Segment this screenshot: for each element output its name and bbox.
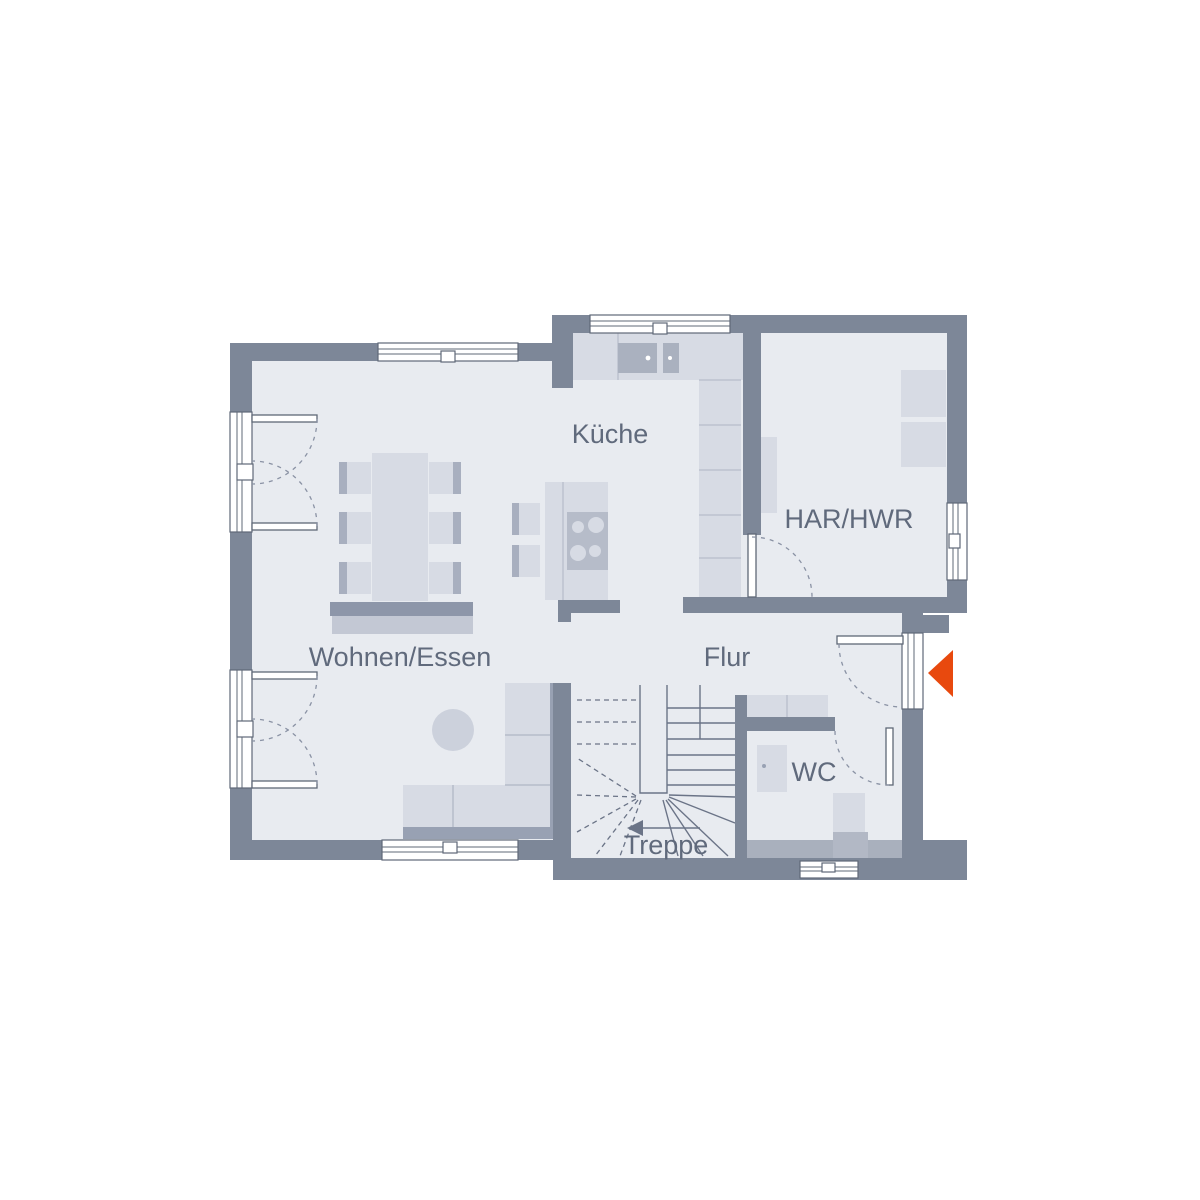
flur-sideboard bbox=[747, 695, 828, 717]
wc-sink bbox=[757, 745, 787, 792]
floor-plan-page: Küche HAR/HWR Wohnen/Essen Flur WC Trepp… bbox=[0, 0, 1200, 1200]
window-kitchen bbox=[590, 315, 730, 334]
room-label-har-hwr: HAR/HWR bbox=[785, 504, 914, 534]
dining-set bbox=[330, 453, 473, 634]
door-handle-icon bbox=[237, 464, 253, 480]
dining-table bbox=[372, 453, 428, 601]
sideboard-body bbox=[332, 616, 473, 634]
entrance-arrow-icon bbox=[928, 650, 953, 697]
window-bottom-living bbox=[382, 840, 518, 860]
room-label-wc: WC bbox=[792, 757, 837, 787]
window-handle-icon bbox=[443, 842, 457, 853]
wc-ledge bbox=[743, 840, 902, 858]
window-har bbox=[947, 503, 967, 580]
dryer bbox=[901, 422, 946, 467]
toilet-base bbox=[833, 832, 868, 858]
room-label-wohnen-essen: Wohnen/Essen bbox=[309, 642, 492, 672]
room-label-flur: Flur bbox=[704, 642, 751, 672]
window-handle-icon bbox=[822, 863, 835, 872]
washer bbox=[901, 370, 946, 417]
coffee-table bbox=[432, 709, 474, 751]
har-shelf bbox=[761, 437, 777, 513]
dining-chairs-left bbox=[339, 462, 371, 594]
floor-plan-canvas: Küche HAR/HWR Wohnen/Essen Flur WC Trepp… bbox=[0, 0, 1200, 1200]
window-handle-icon bbox=[653, 323, 667, 334]
sideboard-dark-top bbox=[330, 602, 473, 616]
window-handle-icon bbox=[949, 534, 960, 548]
dining-chairs-right bbox=[429, 462, 461, 594]
window-handle-icon bbox=[441, 351, 455, 362]
window-wc bbox=[800, 861, 858, 878]
toilet-bowl bbox=[833, 793, 865, 832]
room-label-treppe: Treppe bbox=[624, 830, 709, 860]
room-label-kueche: Küche bbox=[572, 419, 649, 449]
door-handle-icon bbox=[237, 721, 253, 737]
window-top-living bbox=[378, 343, 518, 362]
kitchen-sink bbox=[618, 343, 679, 373]
